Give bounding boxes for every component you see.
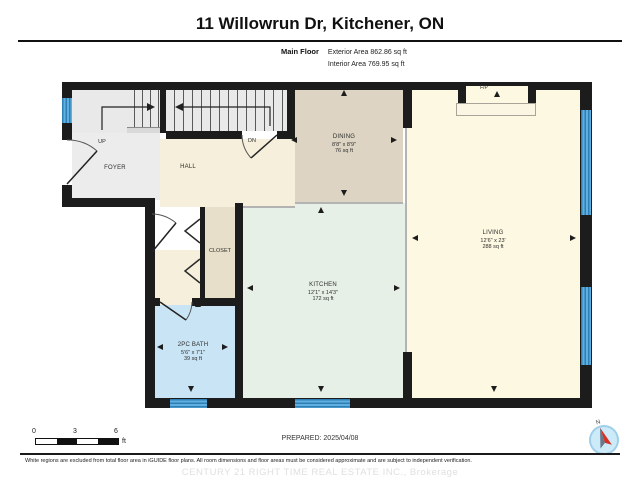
bath-area: 39 sq ft — [148, 356, 238, 363]
dining-dims: 8'8" x 8'9" — [299, 142, 389, 149]
dim-arrow-living-up — [494, 91, 500, 97]
dim-arrow-kitchen-up — [318, 207, 324, 213]
dim-arrow-kitchen-down — [318, 386, 324, 392]
dim-arrow-bath-up — [195, 301, 201, 307]
bifold-door-lower — [185, 259, 200, 283]
scale-tick-0: 0 — [32, 428, 36, 435]
living-dims: 12'6" x 23' — [448, 238, 538, 245]
scale-tick-3: 3 — [73, 428, 77, 435]
dim-arrow-kitchen-right — [394, 285, 400, 291]
storage-door-leaf — [152, 223, 176, 252]
dim-arrow-dining-down — [341, 190, 347, 196]
bath-door-arc — [186, 302, 192, 320]
brokerage-watermark: CENTURY 21 RIGHT TIME REAL ESTATE INC., … — [0, 467, 640, 478]
bath-label: 2PC BATH 5'6" x 7'1" 39 sq ft — [148, 342, 238, 363]
dim-arrow-living-left — [412, 235, 418, 241]
hall-label: HALL — [148, 164, 228, 172]
kitchen-label: KITCHEN 12'1" x 14'3" 172 sq ft — [278, 282, 368, 303]
footer-divider — [20, 453, 620, 455]
stair-down-arrow-head — [175, 103, 183, 111]
prepared-date: PREPARED: 2025/04/08 — [0, 435, 640, 442]
dim-arrow-dining-up — [341, 90, 347, 96]
dim-arrow-dining-right — [391, 137, 397, 143]
footer-disclaimer: White regions are excluded from total fl… — [25, 458, 625, 464]
dining-area: 76 sq ft — [299, 148, 389, 155]
fireplace-label: F/P — [474, 85, 494, 91]
bath-name: 2PC BATH — [148, 342, 238, 350]
dim-arrow-living-right — [570, 235, 576, 241]
living-area: 288 sq ft — [448, 244, 538, 251]
dim-arrow-bath-down — [188, 386, 194, 392]
stairs-down-label: DN — [237, 138, 267, 145]
living-label: LIVING 12'6" x 23' 288 sq ft — [448, 230, 538, 251]
kitchen-name: KITCHEN — [278, 282, 368, 290]
stairs-up-label: UP — [87, 139, 117, 146]
scale-tick-6: 6 — [114, 428, 118, 435]
bath-door-leaf — [160, 302, 186, 320]
foyer-label: FOYER — [75, 165, 155, 173]
dim-arrow-living-down — [491, 386, 497, 392]
dim-arrow-dining-left — [291, 137, 297, 143]
stair-down-arrow-line — [183, 107, 270, 126]
living-name: LIVING — [448, 230, 538, 238]
dining-name: DINING — [299, 134, 389, 142]
dining-label: DINING 8'8" x 8'9" 76 sq ft — [299, 134, 389, 155]
kitchen-area: 172 sq ft — [278, 296, 368, 303]
bath-dims: 5'6" x 7'1" — [148, 350, 238, 357]
bifold-door-upper — [185, 219, 200, 243]
dim-arrow-kitchen-left — [247, 285, 253, 291]
storage-door-arc — [152, 214, 176, 223]
stair-up-arrow-head — [147, 103, 155, 111]
plan-symbols-layer — [0, 0, 640, 495]
floorplan-page: 11 Willowrun Dr, Kitchener, ON Main Floo… — [0, 0, 640, 495]
kitchen-dims: 12'1" x 14'3" — [278, 290, 368, 297]
closet-label: CLOSET — [190, 248, 250, 255]
compass-north-label: N — [595, 419, 601, 426]
stair-up-arrow-line — [102, 107, 147, 130]
